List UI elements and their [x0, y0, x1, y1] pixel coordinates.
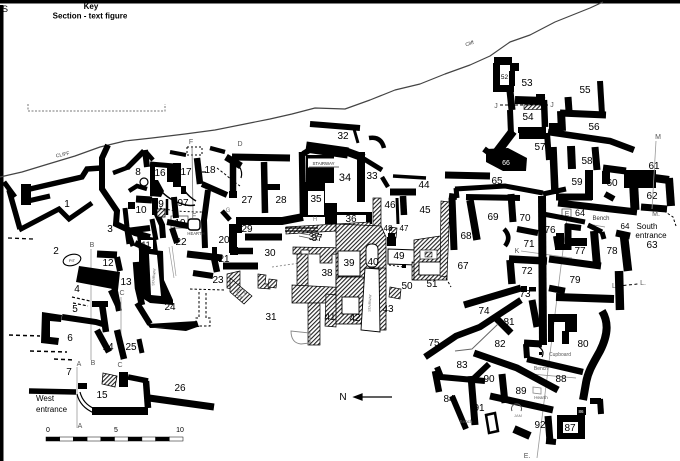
svg-text:66: 66	[502, 160, 510, 167]
svg-text:5: 5	[72, 304, 78, 315]
svg-text:42: 42	[349, 313, 361, 324]
svg-text:92: 92	[534, 420, 546, 431]
svg-text:C: C	[117, 362, 122, 369]
svg-text:J: J	[550, 102, 554, 109]
svg-text:M.: M.	[652, 211, 660, 218]
svg-text:9: 9	[158, 199, 164, 210]
svg-text:56: 56	[588, 122, 600, 133]
svg-text:HEARTH: HEARTH	[187, 231, 204, 236]
svg-text:N: N	[339, 392, 346, 403]
svg-text:35: 35	[310, 194, 322, 205]
svg-text:Bench: Bench	[460, 419, 473, 424]
svg-text:38: 38	[321, 268, 333, 279]
svg-text:33: 33	[366, 171, 378, 182]
svg-text:2: 2	[53, 246, 59, 257]
svg-text:13: 13	[120, 277, 132, 288]
svg-text:8: 8	[135, 167, 141, 178]
svg-text:49: 49	[393, 251, 405, 262]
svg-text:26: 26	[174, 383, 186, 394]
svg-text:29: 29	[241, 224, 253, 235]
svg-text:69: 69	[487, 212, 499, 223]
svg-text:88: 88	[555, 374, 567, 385]
svg-text:12: 12	[102, 258, 114, 269]
svg-text:4: 4	[74, 284, 80, 295]
svg-text:89: 89	[515, 386, 527, 397]
svg-text:7: 7	[66, 367, 72, 378]
svg-text:6: 6	[67, 333, 73, 344]
svg-text:79: 79	[569, 275, 581, 286]
svg-text:PIT: PIT	[69, 258, 76, 263]
svg-text:55: 55	[579, 85, 591, 96]
svg-text:B: B	[91, 360, 96, 367]
svg-text:60: 60	[606, 178, 618, 189]
svg-text:C: C	[119, 290, 124, 297]
svg-text:90: 90	[483, 374, 495, 385]
svg-text:63: 63	[646, 240, 658, 251]
svg-text:27: 27	[241, 195, 253, 206]
svg-text:S: S	[2, 4, 8, 14]
svg-text:52: 52	[501, 74, 509, 81]
svg-text:77: 77	[574, 246, 586, 257]
svg-text:entrance: entrance	[635, 231, 667, 240]
svg-text:B: B	[90, 242, 95, 249]
svg-text:20: 20	[218, 235, 230, 246]
svg-text:47: 47	[400, 224, 409, 233]
svg-text:46: 46	[384, 200, 396, 211]
svg-text:3: 3	[107, 224, 113, 235]
svg-text:18: 18	[204, 165, 216, 176]
svg-text:86: 86	[578, 409, 584, 414]
svg-text:A: A	[78, 423, 83, 430]
svg-text:28: 28	[275, 195, 287, 206]
svg-text:15: 15	[96, 390, 108, 401]
svg-text:37: 37	[311, 233, 323, 244]
svg-text:0: 0	[46, 427, 50, 434]
svg-text:48: 48	[384, 224, 393, 233]
svg-text:97: 97	[177, 198, 189, 209]
svg-text:E.: E.	[524, 453, 531, 460]
svg-text:68: 68	[460, 231, 472, 242]
svg-text:58: 58	[581, 156, 593, 167]
svg-text:STAIRWAY: STAIRWAY	[312, 161, 334, 166]
svg-text:23: 23	[212, 275, 224, 286]
svg-text:31: 31	[265, 312, 277, 323]
svg-text:Hearth: Hearth	[534, 395, 548, 400]
svg-text:43: 43	[382, 304, 394, 315]
svg-text:39: 39	[343, 258, 355, 269]
svg-text:Bench: Bench	[592, 216, 609, 222]
svg-text:50: 50	[401, 281, 413, 292]
svg-text:West: West	[36, 394, 55, 403]
svg-text:75: 75	[428, 338, 440, 349]
svg-text:81: 81	[503, 317, 515, 328]
svg-text:54: 54	[522, 112, 534, 123]
svg-text:16: 16	[154, 168, 166, 179]
svg-text:67: 67	[457, 261, 469, 272]
svg-text:34: 34	[339, 172, 351, 184]
svg-text:82: 82	[494, 339, 506, 350]
svg-text:5: 5	[114, 427, 118, 434]
svg-text:41: 41	[324, 312, 336, 323]
svg-text:53: 53	[521, 78, 533, 89]
svg-text:71: 71	[523, 239, 535, 250]
svg-text:83: 83	[456, 360, 468, 371]
svg-text:entrance: entrance	[36, 405, 68, 414]
svg-text:A: A	[77, 361, 82, 368]
svg-text:Section - text figure: Section - text figure	[53, 12, 128, 21]
svg-text:F: F	[189, 139, 193, 146]
svg-text:JAM: JAM	[514, 413, 522, 418]
svg-text:32: 32	[337, 131, 349, 142]
svg-text:45: 45	[419, 205, 431, 216]
svg-text:H: H	[313, 217, 317, 223]
svg-text:40: 40	[367, 257, 379, 268]
svg-text:Cupboard: Cupboard	[549, 352, 571, 358]
svg-text:Bench: Bench	[534, 366, 548, 372]
svg-text:70: 70	[519, 213, 531, 224]
svg-text:80: 80	[577, 339, 589, 350]
svg-text:72: 72	[521, 266, 533, 277]
svg-text:78: 78	[606, 246, 618, 257]
svg-text:25: 25	[125, 342, 137, 353]
svg-text:South: South	[637, 222, 658, 231]
svg-text:L.: L.	[640, 280, 646, 287]
svg-text:76: 76	[544, 225, 556, 236]
svg-text:Key: Key	[84, 2, 99, 11]
svg-text:10: 10	[176, 427, 184, 434]
svg-text:59: 59	[571, 177, 583, 188]
svg-text:M: M	[655, 134, 661, 141]
svg-text:30: 30	[264, 248, 276, 259]
svg-text:17: 17	[180, 167, 192, 178]
svg-text:J: J	[494, 103, 498, 110]
svg-text:10: 10	[135, 205, 147, 216]
svg-text:1: 1	[64, 199, 70, 210]
svg-text:51: 51	[426, 279, 438, 290]
svg-text:64: 64	[575, 208, 585, 218]
svg-text:K: K	[515, 248, 520, 255]
svg-text:57: 57	[534, 142, 546, 153]
svg-text:D: D	[237, 141, 242, 148]
svg-text:74: 74	[478, 306, 490, 317]
svg-text:64: 64	[621, 222, 630, 231]
svg-text:87: 87	[564, 423, 576, 434]
svg-text:44: 44	[418, 180, 430, 191]
svg-text:91: 91	[473, 403, 485, 414]
svg-text:14: 14	[102, 342, 114, 353]
